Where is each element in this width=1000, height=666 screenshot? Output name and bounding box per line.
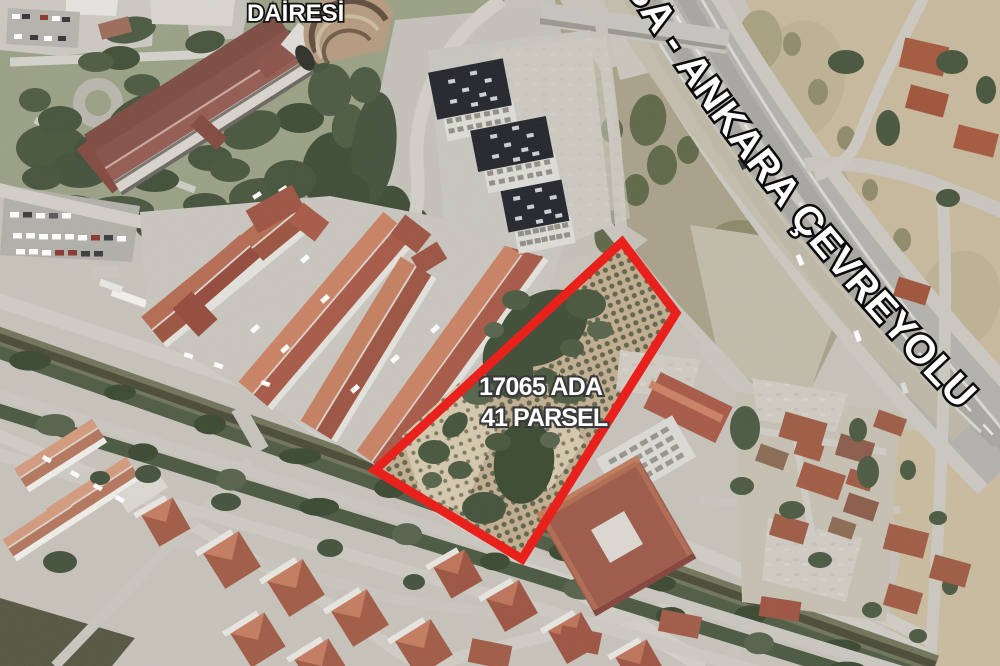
svg-text:41 PARSEL: 41 PARSEL [481, 404, 608, 432]
svg-text:DAİRESİ: DAİRESİ [247, 0, 344, 27]
svg-text:17065 ADA: 17065 ADA [479, 373, 603, 401]
